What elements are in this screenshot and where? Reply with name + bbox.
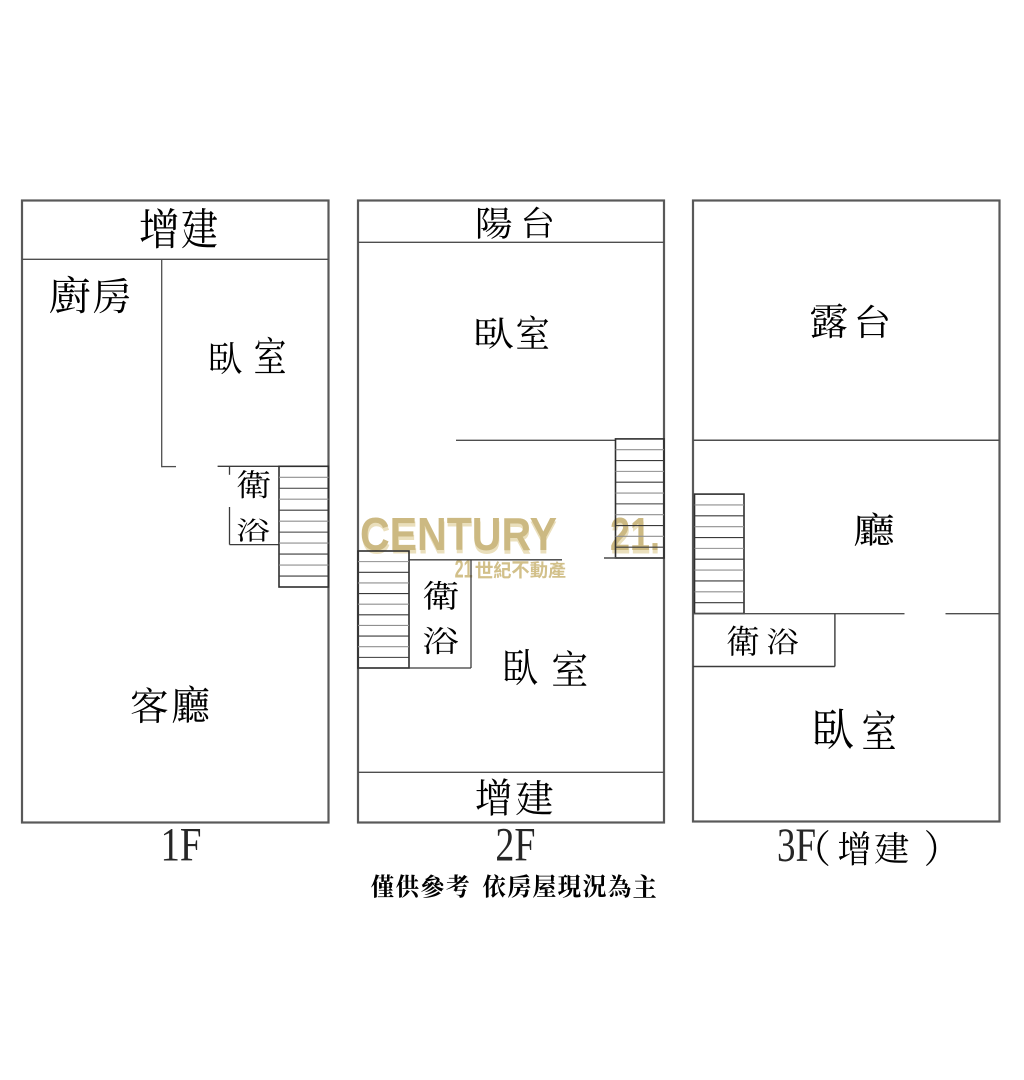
svg-text:1F: 1F	[161, 819, 202, 872]
svg-text:3F: 3F	[777, 819, 816, 872]
svg-text:21.: 21.	[610, 508, 660, 560]
svg-text:2F: 2F	[495, 819, 535, 872]
svg-text:CENTURY: CENTURY	[360, 508, 557, 560]
